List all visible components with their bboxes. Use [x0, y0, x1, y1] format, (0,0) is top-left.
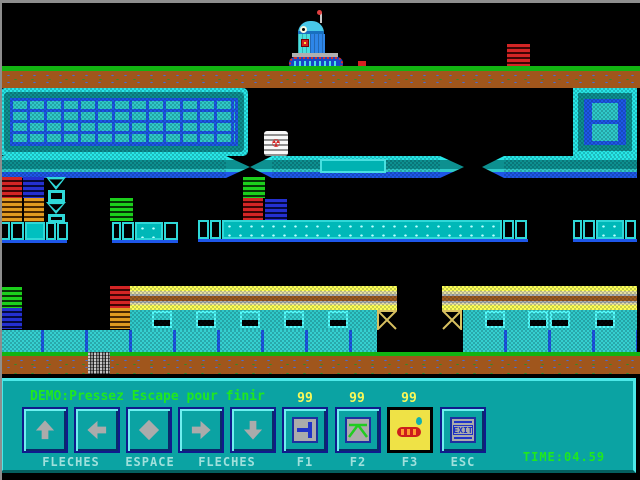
shelf-slot [210, 220, 221, 239]
truss-brace [442, 310, 462, 330]
wall-window [328, 311, 348, 328]
tile-floor [463, 330, 637, 352]
wall-window [152, 311, 172, 328]
shelf-slot [164, 222, 178, 240]
key-button-f2[interactable] [335, 407, 381, 453]
robot-chest-panel [301, 39, 309, 47]
stack-red [507, 44, 530, 67]
stack-orange [2, 198, 44, 222]
dynamite-icon [397, 427, 421, 437]
hud-message: DEMO:Pressez Escape pour finir [30, 389, 265, 404]
slot-shelf [0, 222, 67, 243]
bridge-icon [345, 417, 371, 443]
counter-f3: 99 [394, 391, 424, 406]
stack-blue [2, 308, 22, 329]
shelf-slot-filled [25, 222, 45, 240]
door-frame [573, 88, 637, 156]
radiation-icon: ☢ [272, 137, 280, 150]
key-button-f1[interactable] [282, 407, 328, 453]
status-info: TIME:04.59 MISSION 00 DEMO [503, 402, 625, 480]
bridge-glyph [347, 419, 369, 441]
key-button-space[interactable] [126, 407, 172, 453]
key-label-fleches-1: FLECHES [42, 455, 100, 469]
stack-orange [110, 308, 130, 329]
time-display: TIME:04.59 [503, 446, 625, 468]
door-band [578, 93, 632, 151]
stack-green [110, 198, 133, 221]
lever-icon [292, 417, 318, 443]
platform-inset [320, 159, 386, 173]
platform-tip [482, 156, 504, 178]
arrow-right-icon [189, 418, 213, 442]
robot-vehicle [288, 10, 346, 70]
shelf-slot [57, 222, 68, 240]
shelf-slot [112, 222, 121, 240]
key-label-f3: F3 [402, 455, 418, 469]
counter-f2: 99 [342, 391, 372, 406]
stack-blue [265, 199, 287, 220]
counter-f1: 99 [290, 391, 320, 406]
stack-green [243, 177, 265, 198]
key-label-f2: F2 [350, 455, 366, 469]
wall-window [550, 311, 570, 328]
stack-red [243, 198, 263, 220]
pool-cells [13, 101, 235, 143]
shelf-slot [11, 222, 24, 240]
key-button-left[interactable] [74, 407, 120, 453]
grate [88, 352, 110, 374]
wall-window [240, 311, 260, 328]
layered-beam [130, 286, 397, 310]
platform-right [504, 156, 637, 178]
funnel-box [48, 190, 65, 202]
game-field: ☢ [0, 0, 640, 378]
key-button-f3[interactable] [387, 407, 433, 453]
funnel-piece [46, 177, 66, 190]
key-button-esc[interactable]: EXIT [440, 407, 486, 453]
shelf-slot-filled [135, 222, 163, 240]
control-panel: DEMO:Pressez Escape pour finir 99 99 99 [0, 378, 636, 473]
platform-tip [440, 156, 464, 178]
key-label-espace: ESPACE [125, 455, 174, 469]
robot-pupil [302, 28, 305, 31]
key-button-right[interactable] [178, 407, 224, 453]
robot-eye [300, 26, 307, 33]
truss-brace [377, 310, 397, 330]
slot-shelf [198, 220, 528, 242]
wall-window [196, 311, 216, 328]
grid-pool [0, 88, 248, 156]
door-cells [592, 103, 618, 141]
diamond-icon [137, 418, 161, 442]
key-label-fleches-2: FLECHES [198, 455, 256, 469]
stack-blue [23, 177, 44, 198]
exit-label: EXIT [453, 425, 473, 435]
stack-red [2, 177, 22, 198]
key-label-f1: F1 [297, 455, 313, 469]
shelf-slot [515, 220, 527, 239]
platform-left [0, 156, 226, 178]
dirt-upper [0, 71, 640, 88]
window-wall [463, 310, 637, 330]
slot-shelf [573, 220, 637, 242]
layered-beam [442, 286, 637, 310]
shelf-slot [573, 220, 582, 239]
wall-window [485, 311, 505, 328]
wall-window [284, 311, 304, 328]
platform-tip [250, 156, 272, 178]
platform-tip [226, 156, 250, 178]
funnel-piece [46, 202, 66, 214]
shelf-slot [625, 220, 636, 239]
shelf-slot [503, 220, 514, 239]
hazard-barrel: ☢ [264, 131, 288, 156]
shelf-slot [46, 222, 56, 240]
wall-window [528, 311, 548, 328]
screen-border-top [0, 0, 640, 3]
chest-dot [304, 42, 306, 44]
key-label-esc: ESC [451, 455, 476, 469]
shelf-slot-filled [222, 220, 502, 239]
tile-floor [0, 330, 377, 352]
shelf-slot [198, 220, 209, 239]
arrow-up-icon [33, 418, 57, 442]
window-wall [130, 310, 377, 330]
screen-border-left [0, 0, 2, 480]
door-border [584, 99, 626, 145]
shelf-slot [583, 220, 595, 239]
exit-icon: EXIT [450, 417, 476, 443]
pool-border [10, 98, 238, 146]
slot-shelf [112, 222, 178, 243]
shelf-slot [122, 222, 134, 240]
fuse-drop-icon [416, 417, 422, 425]
stack-green [2, 287, 22, 308]
stack-red [110, 286, 130, 308]
key-button-up[interactable] [22, 407, 68, 453]
lever-arm [297, 428, 309, 432]
arrow-down-icon [241, 418, 265, 442]
game-screen: ☢ [0, 0, 640, 480]
robot-antenna-tip [317, 10, 322, 15]
pool-band [4, 92, 244, 152]
wall-window [595, 311, 615, 328]
key-button-down[interactable] [230, 407, 276, 453]
arrow-left-icon [85, 418, 109, 442]
shelf-slot-filled [596, 220, 624, 239]
